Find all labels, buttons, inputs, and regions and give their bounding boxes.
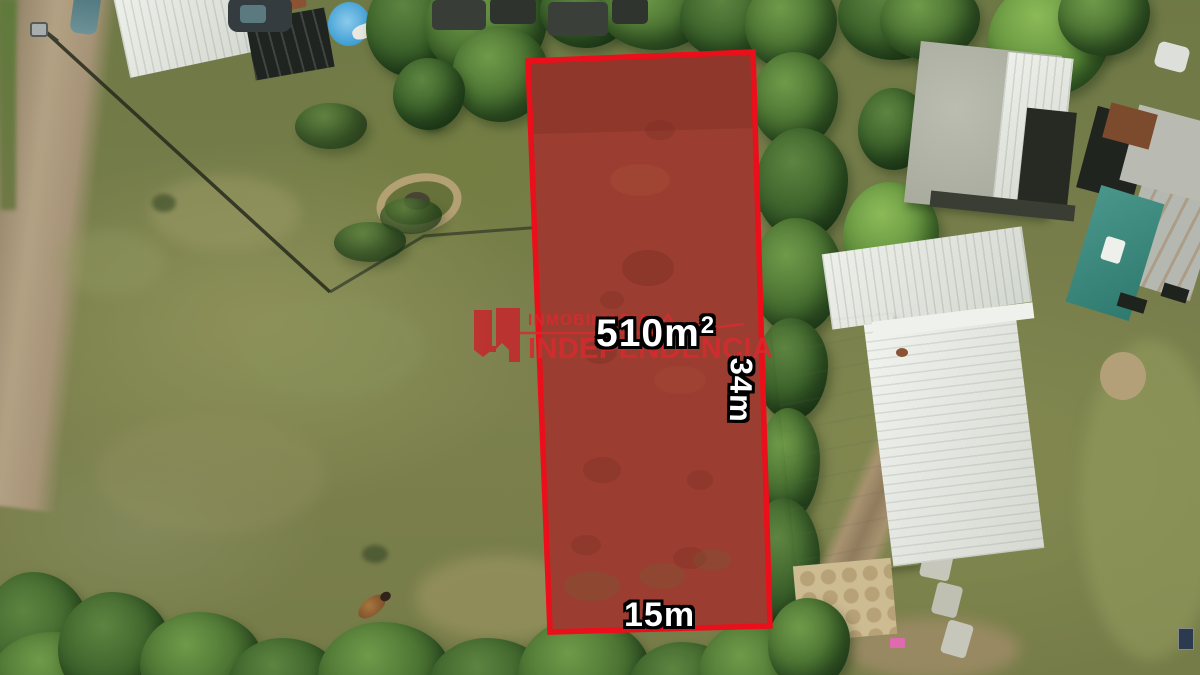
depth-label: 34m <box>725 357 757 423</box>
area-superscript: 2 <box>701 314 715 338</box>
independencia-logo-icon <box>472 306 522 364</box>
aerial-photo: INMOBILIARIA INDEPENDENCIA 510m2 34m 15m <box>0 0 1200 675</box>
area-value: 510m <box>596 312 700 355</box>
width-label: 15m <box>624 598 695 632</box>
area-label: 510m2 <box>596 314 715 353</box>
